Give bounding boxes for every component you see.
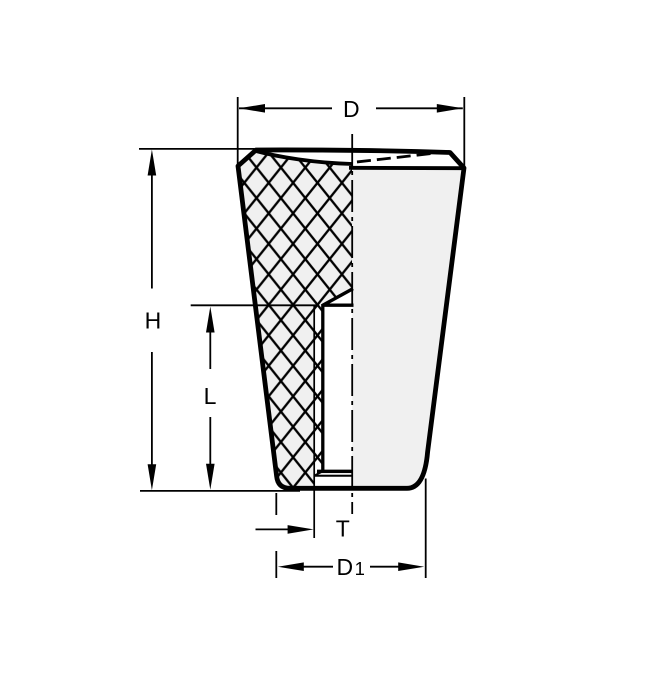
svg-text:T: T <box>336 516 350 542</box>
svg-text:H: H <box>145 307 162 333</box>
svg-text:D1: D1 <box>337 554 365 580</box>
svg-text:L: L <box>204 383 217 409</box>
svg-text:D: D <box>343 96 360 122</box>
